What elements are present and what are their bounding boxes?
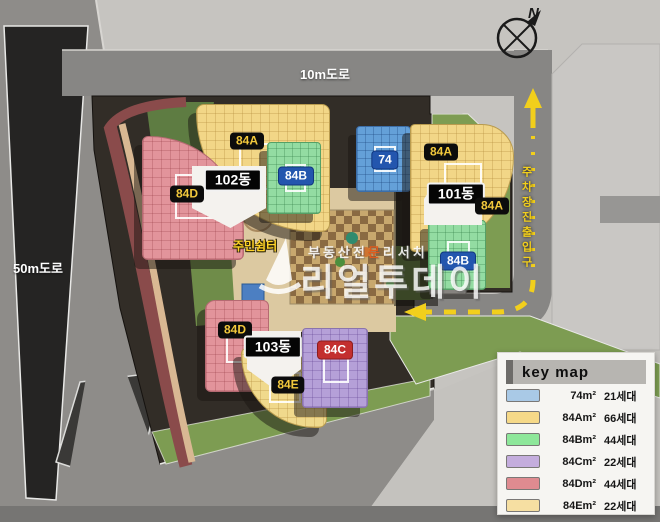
legend-swatch-84b: [506, 433, 540, 446]
label-core-103: 103동: [244, 336, 302, 359]
label-74: 74: [371, 151, 398, 170]
legend-households-84b: 44세대: [604, 432, 636, 448]
legend-swatch-84c: [506, 455, 540, 468]
legend-row-84e: 84Em² 22세대: [506, 495, 646, 516]
label-84a-right-lower: 84A: [475, 198, 509, 215]
label-84e: 84E: [271, 377, 304, 394]
label-84a-right-upper: 84A: [424, 144, 458, 161]
site-plan-canvas: 84A 84B 84D 102동 74 84A 101동 84A 84B 84D…: [0, 0, 660, 522]
legend-title-bar: key map: [506, 360, 646, 384]
legend-row-84c: 84Cm² 22세대: [506, 451, 646, 472]
legend-area-84e: 84Em²: [550, 500, 596, 512]
key-map-legend: key map 74m² 21세대 84Am² 66세대 84Bm² 44세대 …: [497, 352, 655, 515]
legend-row-74: 74m² 21세대: [506, 385, 646, 406]
legend-households-84e: 22세대: [604, 498, 636, 514]
label-84d-top: 84D: [170, 186, 204, 203]
legend-swatch-84d: [506, 477, 540, 490]
label-84b-top: 84B: [278, 167, 314, 186]
legend-row-84a: 84Am² 66세대: [506, 407, 646, 428]
legend-title: key map: [522, 364, 589, 381]
legend-swatch-84e: [506, 499, 540, 512]
road-label-50m: 50m도로: [13, 258, 63, 277]
compass-north-label: N: [528, 5, 539, 22]
legend-area-84c: 84Cm²: [550, 456, 596, 468]
legend-area-84a: 84Am²: [550, 412, 596, 424]
legend-households-74: 21세대: [604, 388, 636, 404]
parking-entrance-label: 주차장진출입구: [518, 166, 534, 271]
legend-area-84b: 84Bm²: [550, 434, 596, 446]
legend-swatch-84a: [506, 411, 540, 424]
label-84a-top: 84A: [230, 133, 264, 150]
label-core-102: 102동: [204, 169, 262, 192]
road-label-10m: 10m도로: [300, 64, 350, 83]
label-84b-right: 84B: [440, 252, 476, 271]
legend-households-84c: 22세대: [604, 454, 636, 470]
label-84c: 84C: [317, 341, 353, 360]
legend-title-accent: [506, 360, 513, 384]
legend-area-74: 74m²: [550, 390, 596, 402]
legend-row-84b: 84Bm² 44세대: [506, 429, 646, 450]
legend-households-84d: 44세대: [604, 476, 636, 492]
legend-row-84d: 84Dm² 44세대: [506, 473, 646, 494]
rest-area-label: 주민쉼터: [233, 237, 277, 254]
legend-swatch-74: [506, 389, 540, 402]
legend-area-84d: 84Dm²: [550, 478, 596, 490]
legend-households-84a: 66세대: [604, 410, 636, 426]
